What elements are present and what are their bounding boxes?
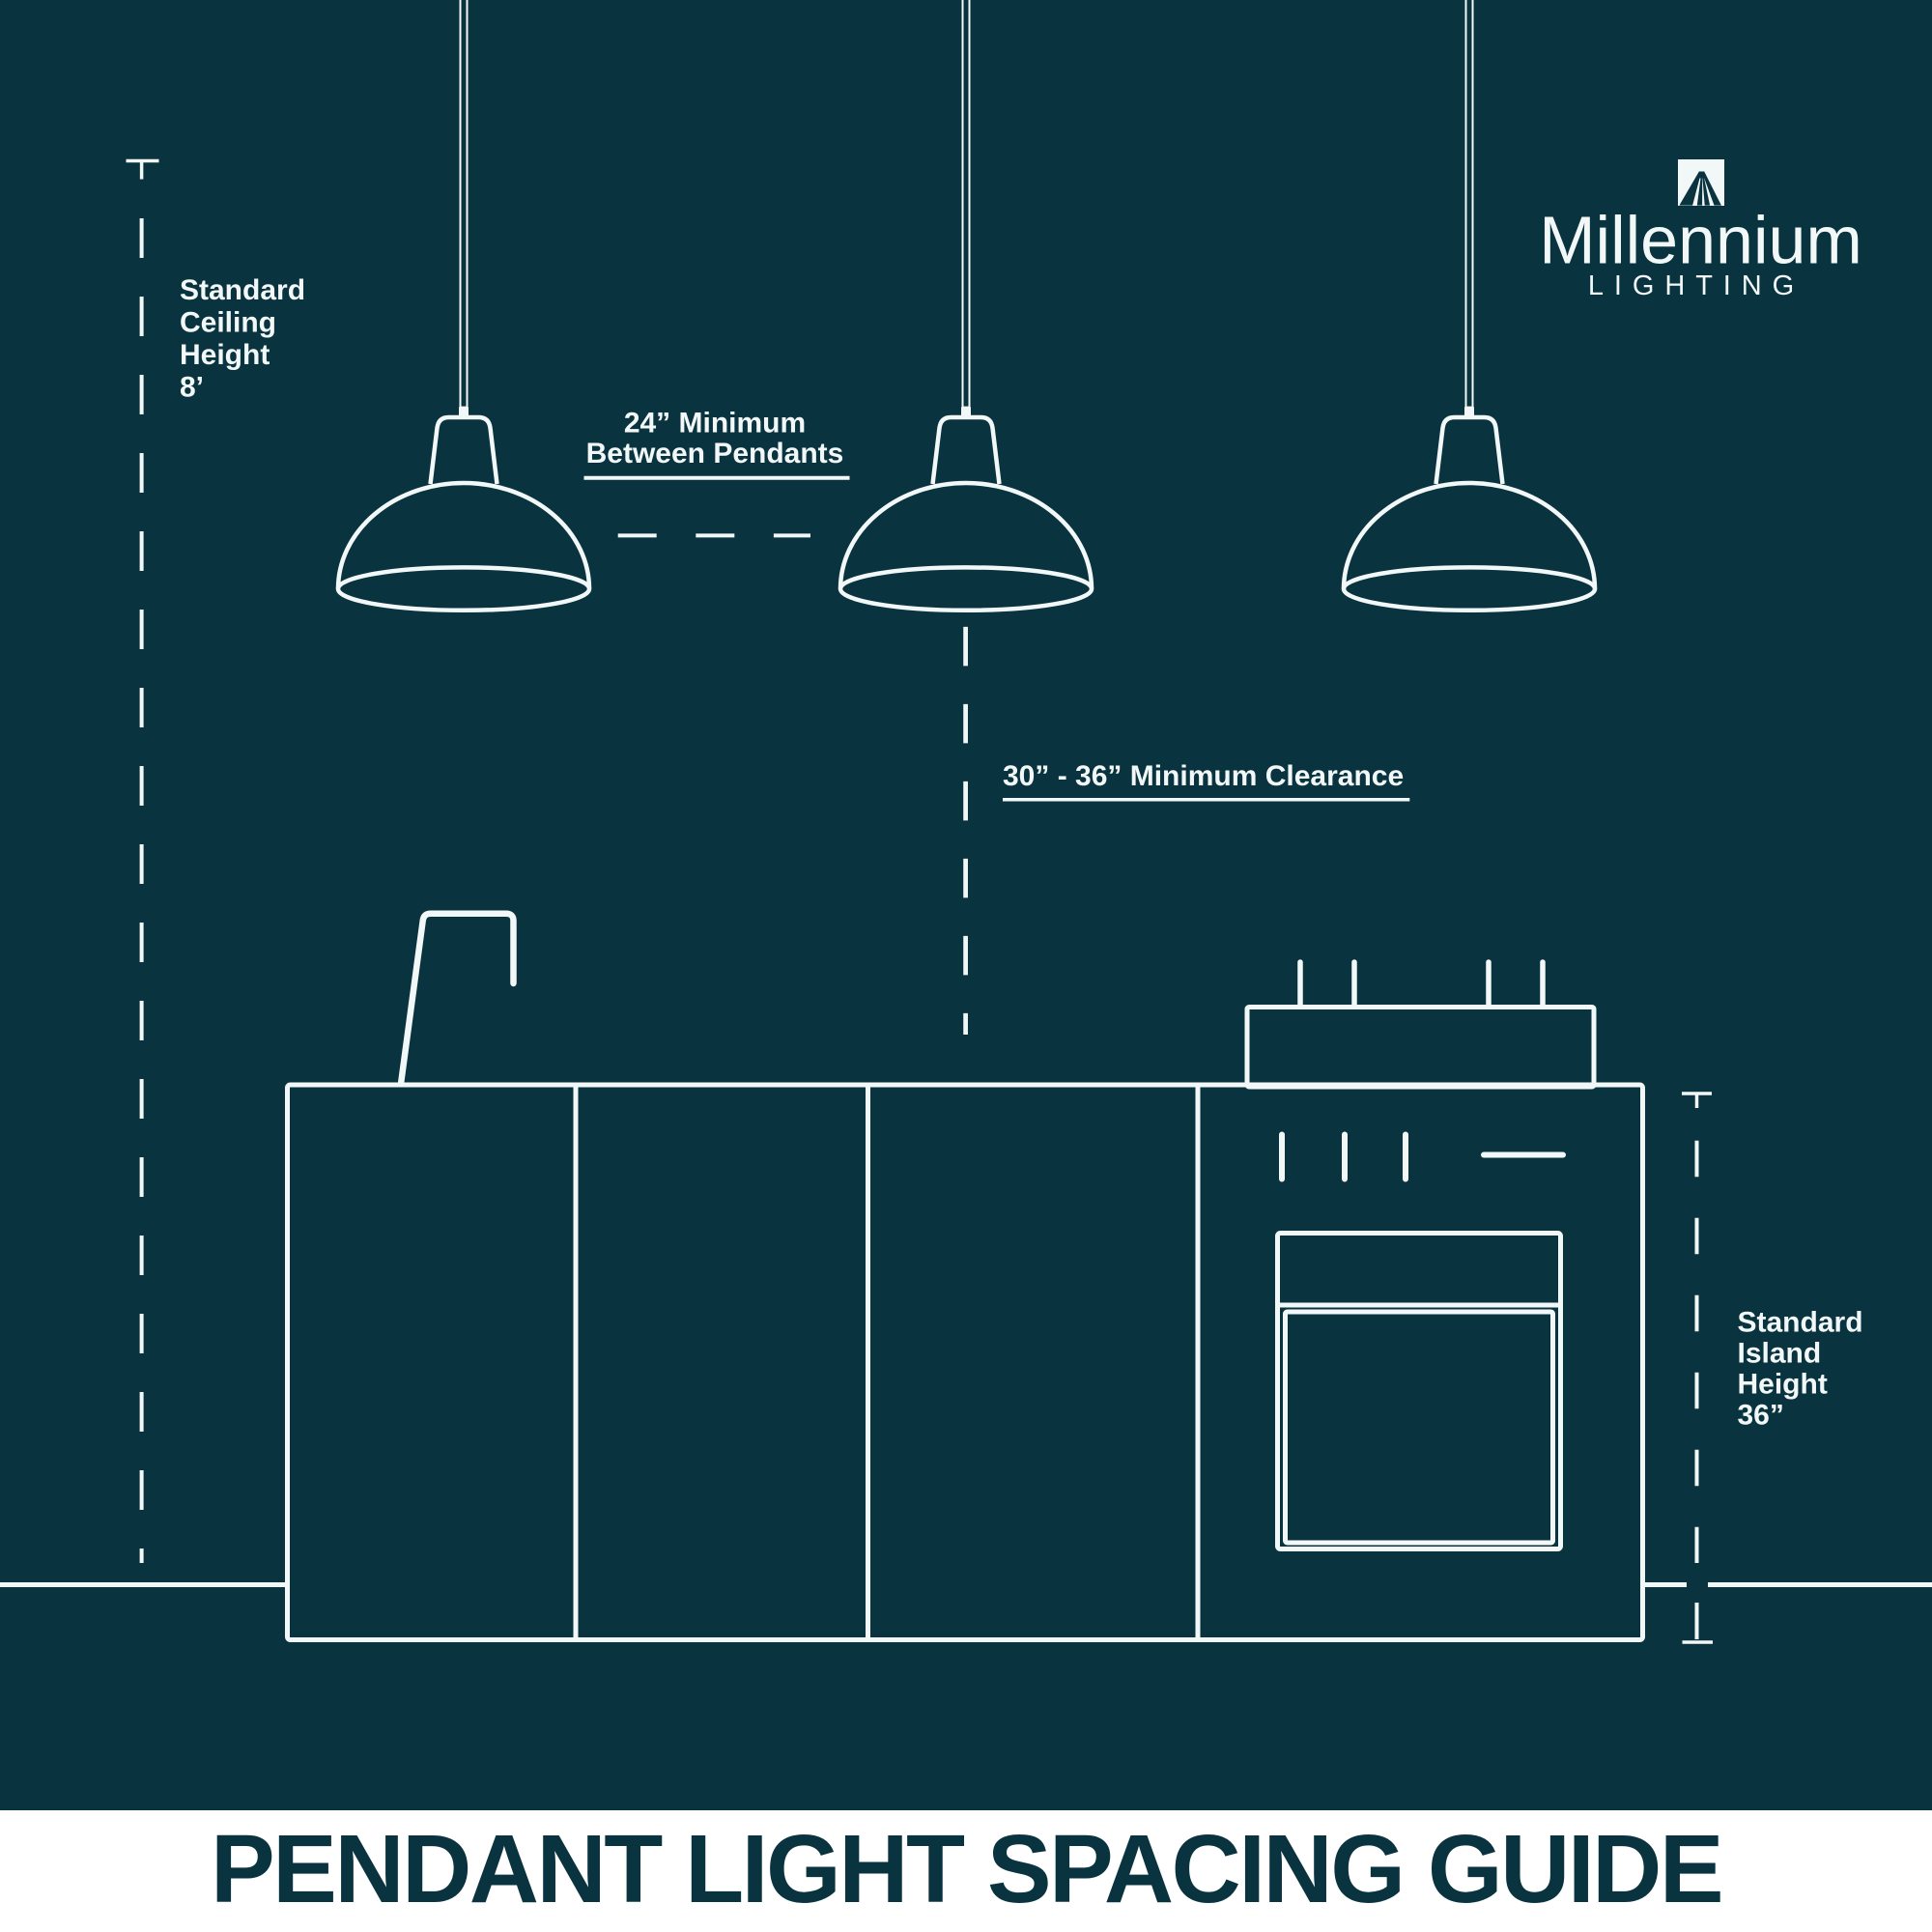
- svg-text:36”: 36”: [1738, 1400, 1784, 1432]
- svg-text:8’: 8’: [180, 372, 204, 404]
- svg-text:LIGHTING: LIGHTING: [1588, 270, 1804, 301]
- svg-text:Height: Height: [1738, 1369, 1828, 1401]
- svg-text:Ceiling: Ceiling: [180, 307, 276, 339]
- svg-text:Standard: Standard: [1738, 1307, 1863, 1339]
- svg-text:24” Minimum: 24” Minimum: [624, 408, 806, 440]
- svg-text:Between Pendants: Between Pendants: [586, 438, 844, 469]
- svg-text:Standard: Standard: [180, 274, 305, 306]
- svg-text:Island: Island: [1738, 1338, 1822, 1370]
- svg-text:Height: Height: [180, 339, 270, 371]
- svg-text:Millennium: Millennium: [1539, 203, 1862, 278]
- svg-text:30” - 36” Minimum Clearance: 30” - 36” Minimum Clearance: [1003, 760, 1404, 792]
- svg-text:PENDANT LIGHT SPACING GUIDE: PENDANT LIGHT SPACING GUIDE: [211, 1815, 1721, 1923]
